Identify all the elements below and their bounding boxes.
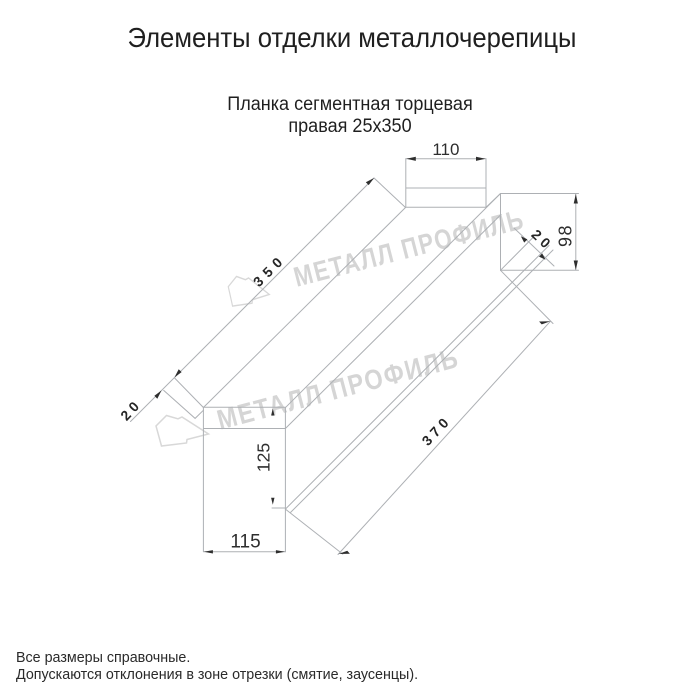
svg-text:115: 115 <box>230 532 260 553</box>
svg-text:МЕТАЛЛ ПРОФИЛЬ: МЕТАЛЛ ПРОФИЛЬ <box>291 203 528 292</box>
svg-text:350: 350 <box>250 250 289 289</box>
svg-text:370: 370 <box>418 412 454 449</box>
svg-text:20: 20 <box>117 395 145 423</box>
svg-text:125: 125 <box>254 443 274 472</box>
svg-text:20: 20 <box>528 226 556 254</box>
svg-text:98: 98 <box>556 224 576 247</box>
svg-text:110: 110 <box>432 140 459 159</box>
svg-text:МЕТАЛЛ ПРОФИЛЬ: МЕТАЛЛ ПРОФИЛЬ <box>214 342 463 436</box>
